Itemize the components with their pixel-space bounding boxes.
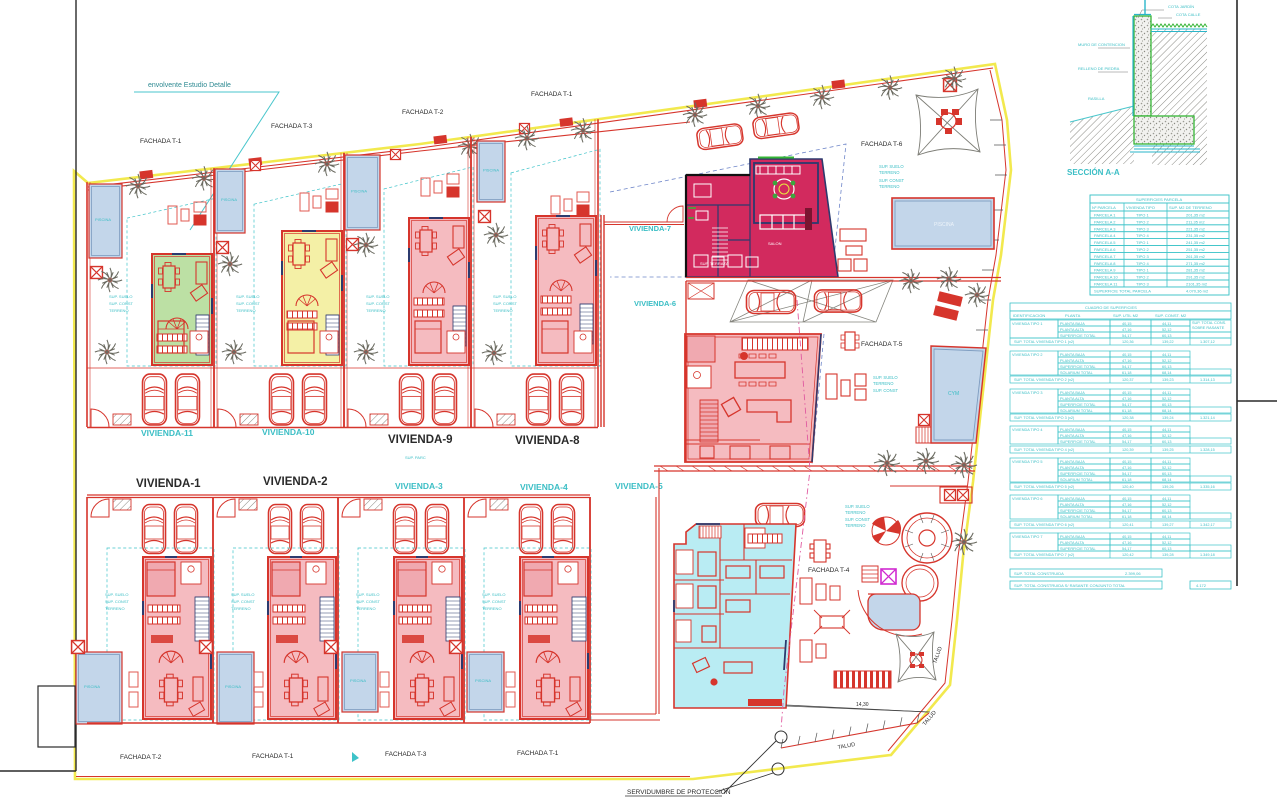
svg-text:14,30: 14,30 — [856, 702, 869, 708]
svg-text:PARCELA 2: PARCELA 2 — [1094, 219, 1116, 224]
svg-text:TIPO 3: TIPO 3 — [1136, 282, 1149, 287]
svg-text:TIPO 2: TIPO 2 — [1136, 219, 1149, 224]
svg-text:PLANTA BAJA: PLANTA BAJA — [1060, 322, 1085, 326]
svg-text:FACHADA T-1: FACHADA T-1 — [517, 750, 559, 757]
svg-text:SERVIDUMBRE DE PROTECCIÓN: SERVIDUMBRE DE PROTECCIÓN — [627, 787, 731, 796]
svg-text:61,18: 61,18 — [1122, 478, 1132, 482]
svg-text:PARCELA 9: PARCELA 9 — [1094, 268, 1116, 273]
svg-text:PLANTA BAJA: PLANTA BAJA — [1060, 391, 1085, 395]
svg-text:TERRENO: TERRENO — [356, 606, 376, 611]
svg-text:PARCELA 3: PARCELA 3 — [1094, 226, 1116, 231]
svg-text:SUP. TOTAL CONSTRUIDA: SUP. TOTAL CONSTRUIDA — [1014, 571, 1064, 576]
svg-text:TERRENO: TERRENO — [879, 170, 900, 175]
svg-text:PISCINA: PISCINA — [350, 678, 366, 683]
svg-text:VIVIENDA-6: VIVIENDA-6 — [634, 299, 676, 308]
svg-text:61,18: 61,18 — [1122, 371, 1132, 375]
svg-text:SUP. TOTAL VIVIENDA TIPO 5 (x2: SUP. TOTAL VIVIENDA TIPO 5 (x2) — [1014, 485, 1075, 489]
svg-text:SUP. CONST: SUP. CONST — [879, 178, 904, 183]
svg-text:60,13: 60,13 — [1162, 440, 1172, 444]
svg-text:SUP. TERRAZA: SUP. TERRAZA — [700, 261, 729, 266]
svg-text:2101,35 m2: 2101,35 m2 — [1186, 282, 1208, 287]
svg-text:VIVIENDA-5: VIVIENDA-5 — [615, 481, 663, 491]
svg-text:PARCELA 11: PARCELA 11 — [1094, 282, 1118, 287]
svg-text:52,12: 52,12 — [1162, 397, 1172, 401]
svg-text:VIVIENDA TIPO: VIVIENDA TIPO — [1126, 205, 1155, 210]
svg-text:PLANTA ALTA: PLANTA ALTA — [1060, 359, 1085, 363]
svg-text:VIVIENDA TIPO 6: VIVIENDA TIPO 6 — [1012, 497, 1043, 501]
svg-text:291,35 m2: 291,35 m2 — [1186, 275, 1206, 280]
svg-text:Nº PARCELA: Nº PARCELA — [1092, 205, 1116, 210]
svg-text:120,39: 120,39 — [1122, 448, 1134, 452]
svg-text:FACHADA T-2: FACHADA T-2 — [120, 754, 162, 761]
svg-text:60,13: 60,13 — [1162, 403, 1172, 407]
svg-text:FACHADA T-3: FACHADA T-3 — [271, 123, 313, 130]
svg-text:SUP. UTIL M2: SUP. UTIL M2 — [1113, 313, 1139, 318]
svg-text:47,16: 47,16 — [1122, 359, 1132, 363]
svg-text:1.328,15: 1.328,15 — [1200, 448, 1215, 452]
svg-text:SUP. TOTAL VIVIENDA TIPO 7 (x2: SUP. TOTAL VIVIENDA TIPO 7 (x2) — [1014, 553, 1075, 557]
svg-text:VIVIENDA TIPO 4: VIVIENDA TIPO 4 — [1012, 428, 1043, 432]
svg-text:VIVIENDA-11: VIVIENDA-11 — [141, 428, 193, 438]
svg-text:4.172: 4.172 — [1196, 583, 1207, 588]
svg-text:SUPERFICIE TOTAL: SUPERFICIE TOTAL — [1060, 440, 1096, 444]
svg-text:PLANTA ALTA: PLANTA ALTA — [1060, 466, 1085, 470]
svg-text:SUPERFICIE TOTAL: SUPERFICIE TOTAL — [1060, 365, 1096, 369]
svg-text:PARCELA 1: PARCELA 1 — [1094, 213, 1116, 218]
svg-text:241,35 m2: 241,35 m2 — [1186, 240, 1206, 245]
svg-text:1.314,13: 1.314,13 — [1200, 378, 1215, 382]
svg-text:SOLARIUM TOTAL: SOLARIUM TOTAL — [1060, 409, 1093, 413]
svg-text:CUADRO DE SUPERFICIES: CUADRO DE SUPERFICIES — [1085, 305, 1137, 310]
svg-text:SUP. CONST: SUP. CONST — [231, 599, 255, 604]
svg-text:RASILLA: RASILLA — [1088, 96, 1105, 101]
svg-text:SUPERFICIES PARCELA: SUPERFICIES PARCELA — [1136, 197, 1182, 202]
svg-text:SUPERFICIE TOTAL: SUPERFICIE TOTAL — [1060, 472, 1096, 476]
svg-text:SUP. TOTAL VIVIENDA TIPO 2 (x2: SUP. TOTAL VIVIENDA TIPO 2 (x2) — [1014, 378, 1075, 382]
svg-text:68,14: 68,14 — [1162, 515, 1172, 519]
svg-text:54,17: 54,17 — [1122, 440, 1132, 444]
svg-text:SUP. SUELO: SUP. SUELO — [236, 294, 260, 299]
svg-text:TIPO 1: TIPO 1 — [1136, 213, 1149, 218]
svg-text:40,15: 40,15 — [1122, 322, 1132, 326]
svg-text:40,15: 40,15 — [1122, 391, 1132, 395]
svg-text:60,13: 60,13 — [1162, 365, 1172, 369]
svg-text:54,17: 54,17 — [1122, 472, 1132, 476]
svg-text:CYM: CYM — [948, 391, 959, 397]
svg-text:1.349,18: 1.349,18 — [1200, 553, 1215, 557]
svg-text:VIVIENDA-8: VIVIENDA-8 — [515, 435, 580, 447]
svg-text:SUP. CONST. M2: SUP. CONST. M2 — [1155, 313, 1187, 318]
svg-text:FACHADA T-6: FACHADA T-6 — [861, 141, 903, 148]
svg-text:RELLENO DE PIEDRA: RELLENO DE PIEDRA — [1078, 66, 1120, 71]
svg-text:47,16: 47,16 — [1122, 434, 1132, 438]
svg-text:PISCINA: PISCINA — [225, 684, 241, 689]
svg-text:47,16: 47,16 — [1122, 466, 1132, 470]
svg-text:44,11: 44,11 — [1162, 428, 1171, 432]
svg-text:52,12: 52,12 — [1162, 434, 1172, 438]
svg-text:SUP. TOTAL VIVIENDA TIPO 1 (x2: SUP. TOTAL VIVIENDA TIPO 1 (x2) — [1014, 340, 1075, 344]
svg-text:1.335,16: 1.335,16 — [1200, 485, 1215, 489]
svg-text:PLANTA ALTA: PLANTA ALTA — [1060, 328, 1085, 332]
svg-text:44,11: 44,11 — [1162, 353, 1171, 357]
svg-text:139,28: 139,28 — [1162, 553, 1174, 557]
svg-text:SUP. SUELO: SUP. SUELO — [493, 294, 517, 299]
svg-text:PLANTA BAJA: PLANTA BAJA — [1060, 460, 1085, 464]
svg-text:PLANTA ALTA: PLANTA ALTA — [1060, 503, 1085, 507]
svg-text:SECCIÓN A-A: SECCIÓN A-A — [1067, 168, 1120, 177]
svg-text:FACHADA T-1: FACHADA T-1 — [140, 138, 182, 145]
svg-text:PARCELA 5: PARCELA 5 — [1094, 240, 1116, 245]
svg-text:TIPO 2: TIPO 2 — [1136, 275, 1149, 280]
svg-text:44,11: 44,11 — [1162, 535, 1171, 539]
svg-text:VIVIENDA-3: VIVIENDA-3 — [395, 481, 443, 491]
svg-text:IDENTIFICACION: IDENTIFICACION — [1013, 313, 1045, 318]
svg-text:139,26: 139,26 — [1162, 485, 1174, 489]
svg-text:SOLARIUM TOTAL: SOLARIUM TOTAL — [1060, 478, 1093, 482]
svg-text:PISCINA: PISCINA — [95, 217, 111, 222]
svg-text:TIPO 4: TIPO 4 — [1136, 261, 1149, 266]
svg-text:4.070,36 m2: 4.070,36 m2 — [1186, 289, 1209, 294]
svg-text:1.307,12: 1.307,12 — [1200, 340, 1215, 344]
svg-text:SOBRE RASANTE: SOBRE RASANTE — [1192, 326, 1225, 330]
svg-text:SALON: SALON — [768, 241, 782, 246]
svg-text:PLANTA BAJA: PLANTA BAJA — [1060, 497, 1085, 501]
svg-text:40,15: 40,15 — [1122, 460, 1132, 464]
svg-text:54,17: 54,17 — [1122, 509, 1132, 513]
svg-text:VIVIENDA TIPO 1: VIVIENDA TIPO 1 — [1012, 322, 1043, 326]
svg-text:47,16: 47,16 — [1122, 397, 1132, 401]
svg-text:COTA JARDÍN: COTA JARDÍN — [1168, 4, 1194, 9]
svg-text:TERRENO: TERRENO — [873, 381, 894, 386]
svg-text:PISCINA: PISCINA — [483, 168, 499, 173]
svg-text:MURO DE CONTENCION: MURO DE CONTENCION — [1078, 42, 1125, 47]
svg-text:SUP. CONST: SUP. CONST — [873, 388, 898, 393]
svg-text:SUP. PARC: SUP. PARC — [405, 455, 426, 460]
svg-text:SUPERFICIE TOTAL PARCELA: SUPERFICIE TOTAL PARCELA — [1094, 289, 1151, 294]
svg-text:SUPERFICIE TOTAL: SUPERFICIE TOTAL — [1060, 547, 1096, 551]
svg-text:60,13: 60,13 — [1162, 334, 1172, 338]
svg-text:SUPERFICIE TOTAL: SUPERFICIE TOTAL — [1060, 403, 1096, 407]
svg-text:TERRENO: TERRENO — [105, 606, 125, 611]
svg-text:SUP. SUELO: SUP. SUELO — [356, 592, 380, 597]
svg-text:61,18: 61,18 — [1122, 409, 1132, 413]
svg-text:PLANTA BAJA: PLANTA BAJA — [1060, 535, 1085, 539]
svg-text:PLANTA BAJA: PLANTA BAJA — [1060, 428, 1085, 432]
svg-text:54,17: 54,17 — [1122, 365, 1132, 369]
svg-text:SUPERFICIE TOTAL: SUPERFICIE TOTAL — [1060, 509, 1096, 513]
svg-text:SUP. M2 DE TERRENO: SUP. M2 DE TERRENO — [1169, 205, 1212, 210]
svg-text:PISCINA: PISCINA — [351, 189, 367, 194]
svg-text:VIVIENDA TIPO 3: VIVIENDA TIPO 3 — [1012, 391, 1043, 395]
svg-text:FACHADA T-4: FACHADA T-4 — [808, 567, 850, 574]
svg-text:60,13: 60,13 — [1162, 509, 1172, 513]
svg-text:251,35 m2: 251,35 m2 — [1186, 247, 1206, 252]
svg-text:68,14: 68,14 — [1162, 409, 1172, 413]
svg-text:40,15: 40,15 — [1122, 535, 1132, 539]
svg-text:PLANTA BAJA: PLANTA BAJA — [1060, 353, 1085, 357]
svg-text:52,12: 52,12 — [1162, 328, 1172, 332]
svg-text:54,17: 54,17 — [1122, 334, 1132, 338]
svg-text:PARCELA 8: PARCELA 8 — [1094, 261, 1116, 266]
svg-text:FACHADA T-5: FACHADA T-5 — [861, 341, 903, 348]
svg-text:47,16: 47,16 — [1122, 328, 1132, 332]
svg-text:139,24: 139,24 — [1162, 416, 1174, 420]
svg-text:VIVIENDA-4: VIVIENDA-4 — [520, 482, 568, 492]
svg-text:PISCINA: PISCINA — [221, 197, 237, 202]
svg-text:68,14: 68,14 — [1162, 371, 1172, 375]
svg-text:VIVIENDA-10: VIVIENDA-10 — [262, 427, 315, 437]
svg-text:PARCELA 4: PARCELA 4 — [1094, 233, 1116, 238]
svg-text:SUP. CONST: SUP. CONST — [236, 301, 260, 306]
svg-text:FACHADA T-3: FACHADA T-3 — [385, 751, 427, 758]
svg-text:PLANTA: PLANTA — [1065, 313, 1081, 318]
svg-text:40,15: 40,15 — [1122, 428, 1132, 432]
svg-text:TERRENO: TERRENO — [366, 308, 386, 313]
svg-text:SUP. CONST: SUP. CONST — [105, 599, 129, 604]
svg-text:TIPO 1: TIPO 1 — [1136, 240, 1149, 245]
svg-text:120,37: 120,37 — [1122, 378, 1134, 382]
svg-text:120,41: 120,41 — [1122, 523, 1134, 527]
svg-text:139,23: 139,23 — [1162, 378, 1174, 382]
svg-text:1.321,14: 1.321,14 — [1200, 416, 1215, 420]
svg-text:SUP. CONST: SUP. CONST — [493, 301, 517, 306]
svg-text:52,12: 52,12 — [1162, 466, 1172, 470]
svg-text:SOLARIUM TOTAL: SOLARIUM TOTAL — [1060, 515, 1093, 519]
svg-text:44,11: 44,11 — [1162, 460, 1171, 464]
svg-text:SUP. CONST: SUP. CONST — [482, 599, 506, 604]
svg-text:54,17: 54,17 — [1122, 403, 1132, 407]
svg-text:VIVIENDA-7: VIVIENDA-7 — [629, 224, 671, 233]
svg-text:FACHADA T-2: FACHADA T-2 — [402, 109, 444, 116]
svg-text:PARCELA 10: PARCELA 10 — [1094, 275, 1118, 280]
svg-text:PARCELA 6: PARCELA 6 — [1094, 247, 1116, 252]
svg-text:120,38: 120,38 — [1122, 416, 1134, 420]
svg-text:PARCELA 7: PARCELA 7 — [1094, 254, 1116, 259]
svg-text:40,15: 40,15 — [1122, 497, 1132, 501]
svg-text:TERRENO: TERRENO — [493, 308, 513, 313]
svg-text:SUP. TOTAL CONS.: SUP. TOTAL CONS. — [1192, 321, 1226, 325]
svg-text:SUP. CONST: SUP. CONST — [845, 517, 870, 522]
svg-text:SUP. TOTAL VIVIENDA TIPO 4 (x2: SUP. TOTAL VIVIENDA TIPO 4 (x2) — [1014, 448, 1075, 452]
svg-text:281,35 m2: 281,35 m2 — [1186, 268, 1206, 273]
svg-text:139,25: 139,25 — [1162, 448, 1174, 452]
svg-text:120,40: 120,40 — [1122, 485, 1134, 489]
svg-text:SUP. CONST: SUP. CONST — [366, 301, 390, 306]
svg-text:44,11: 44,11 — [1162, 322, 1171, 326]
svg-text:TIPO 2: TIPO 2 — [1136, 247, 1149, 252]
svg-text:VIVIENDA TIPO 5: VIVIENDA TIPO 5 — [1012, 460, 1043, 464]
svg-text:envolvente Estudio Detalle: envolvente Estudio Detalle — [148, 82, 231, 89]
svg-text:PLANTA ALTA: PLANTA ALTA — [1060, 397, 1085, 401]
svg-text:PLANTA ALTA: PLANTA ALTA — [1060, 434, 1085, 438]
svg-text:SUP. TOTAL VIVIENDA TIPO 3 (x2: SUP. TOTAL VIVIENDA TIPO 3 (x2) — [1014, 416, 1075, 420]
svg-text:PISCINA: PISCINA — [475, 678, 491, 683]
svg-text:SUP. SUELO: SUP. SUELO — [845, 504, 870, 509]
svg-text:261,35 m2: 261,35 m2 — [1186, 254, 1206, 259]
svg-text:139,22: 139,22 — [1162, 340, 1174, 344]
svg-text:271,35 m2: 271,35 m2 — [1186, 261, 1206, 266]
svg-text:139,27: 139,27 — [1162, 523, 1174, 527]
svg-text:COTA CALLE: COTA CALLE — [1176, 12, 1201, 17]
svg-text:SUP. CONST: SUP. CONST — [109, 301, 133, 306]
svg-text:VIVIENDA TIPO 7: VIVIENDA TIPO 7 — [1012, 535, 1043, 539]
svg-text:SUP. SUELO: SUP. SUELO — [482, 592, 506, 597]
svg-text:PLANTA ALTA: PLANTA ALTA — [1060, 541, 1085, 545]
svg-text:52,12: 52,12 — [1162, 541, 1172, 545]
svg-text:TERRENO: TERRENO — [482, 606, 502, 611]
svg-text:SUP. TOTAL VIVIENDA TIPO 6 (x2: SUP. TOTAL VIVIENDA TIPO 6 (x2) — [1014, 523, 1075, 527]
svg-text:SUP. SUELO: SUP. SUELO — [109, 294, 133, 299]
svg-text:VIVIENDA TIPO 2: VIVIENDA TIPO 2 — [1012, 353, 1043, 357]
svg-text:FACHADA T-1: FACHADA T-1 — [252, 753, 294, 760]
svg-text:44,11: 44,11 — [1162, 391, 1171, 395]
svg-text:FACHADA T-1: FACHADA T-1 — [531, 91, 573, 98]
svg-text:221,35 m2: 221,35 m2 — [1186, 226, 1206, 231]
svg-text:VIVIENDA-9: VIVIENDA-9 — [388, 434, 453, 446]
svg-text:TERRENO: TERRENO — [109, 308, 129, 313]
svg-text:47,16: 47,16 — [1122, 503, 1132, 507]
svg-text:TERRENO: TERRENO — [845, 510, 866, 515]
svg-text:61,18: 61,18 — [1122, 515, 1132, 519]
svg-text:52,12: 52,12 — [1162, 359, 1172, 363]
svg-text:SOLARIUM TOTAL: SOLARIUM TOTAL — [1060, 371, 1093, 375]
svg-text:1.342,17: 1.342,17 — [1200, 523, 1215, 527]
svg-text:SUPERFICIE TOTAL: SUPERFICIE TOTAL — [1060, 334, 1096, 338]
svg-text:201,35 m2: 201,35 m2 — [1186, 213, 1206, 218]
svg-text:52,12: 52,12 — [1162, 503, 1172, 507]
svg-text:TIPO 3: TIPO 3 — [1136, 254, 1149, 259]
svg-text:231,35 m2: 231,35 m2 — [1186, 233, 1206, 238]
svg-text:TIPO 4: TIPO 4 — [1136, 233, 1149, 238]
svg-text:PISCINA: PISCINA — [934, 222, 955, 228]
svg-text:SUP. SUELO: SUP. SUELO — [105, 592, 129, 597]
svg-text:TIPO 1: TIPO 1 — [1136, 268, 1149, 273]
svg-text:54,17: 54,17 — [1122, 547, 1132, 551]
svg-text:SUP. CONST: SUP. CONST — [356, 599, 380, 604]
svg-text:211,35 m2: 211,35 m2 — [1186, 219, 1205, 224]
svg-text:VIVIENDA-2: VIVIENDA-2 — [263, 476, 328, 488]
svg-text:47,16: 47,16 — [1122, 541, 1132, 545]
svg-text:VIVIENDA-1: VIVIENDA-1 — [136, 478, 201, 490]
svg-text:60,13: 60,13 — [1162, 472, 1172, 476]
svg-text:TERRENO: TERRENO — [845, 523, 866, 528]
svg-text:TERRENO: TERRENO — [879, 184, 900, 189]
svg-text:120,36: 120,36 — [1122, 340, 1134, 344]
svg-text:SUP. SUELO: SUP. SUELO — [231, 592, 255, 597]
svg-text:SUP. TOTAL CONSTRUIDA S/ RASAN: SUP. TOTAL CONSTRUIDA S/ RASANTE CONJUNT… — [1014, 583, 1126, 588]
svg-text:TIPO 3: TIPO 3 — [1136, 226, 1149, 231]
svg-text:SUP. SUELO: SUP. SUELO — [873, 375, 898, 380]
svg-text:40,15: 40,15 — [1122, 353, 1132, 357]
svg-text:SUP. SUELO: SUP. SUELO — [879, 164, 904, 169]
svg-text:SUP. SUELO: SUP. SUELO — [366, 294, 390, 299]
svg-text:120,42: 120,42 — [1122, 553, 1134, 557]
svg-text:2.399,06: 2.399,06 — [1125, 571, 1141, 576]
svg-text:44,11: 44,11 — [1162, 497, 1171, 501]
svg-text:TERRENO: TERRENO — [236, 308, 256, 313]
svg-text:TERRENO: TERRENO — [231, 606, 251, 611]
svg-text:60,13: 60,13 — [1162, 547, 1172, 551]
svg-text:68,14: 68,14 — [1162, 478, 1172, 482]
svg-text:PISCINA: PISCINA — [84, 684, 100, 689]
